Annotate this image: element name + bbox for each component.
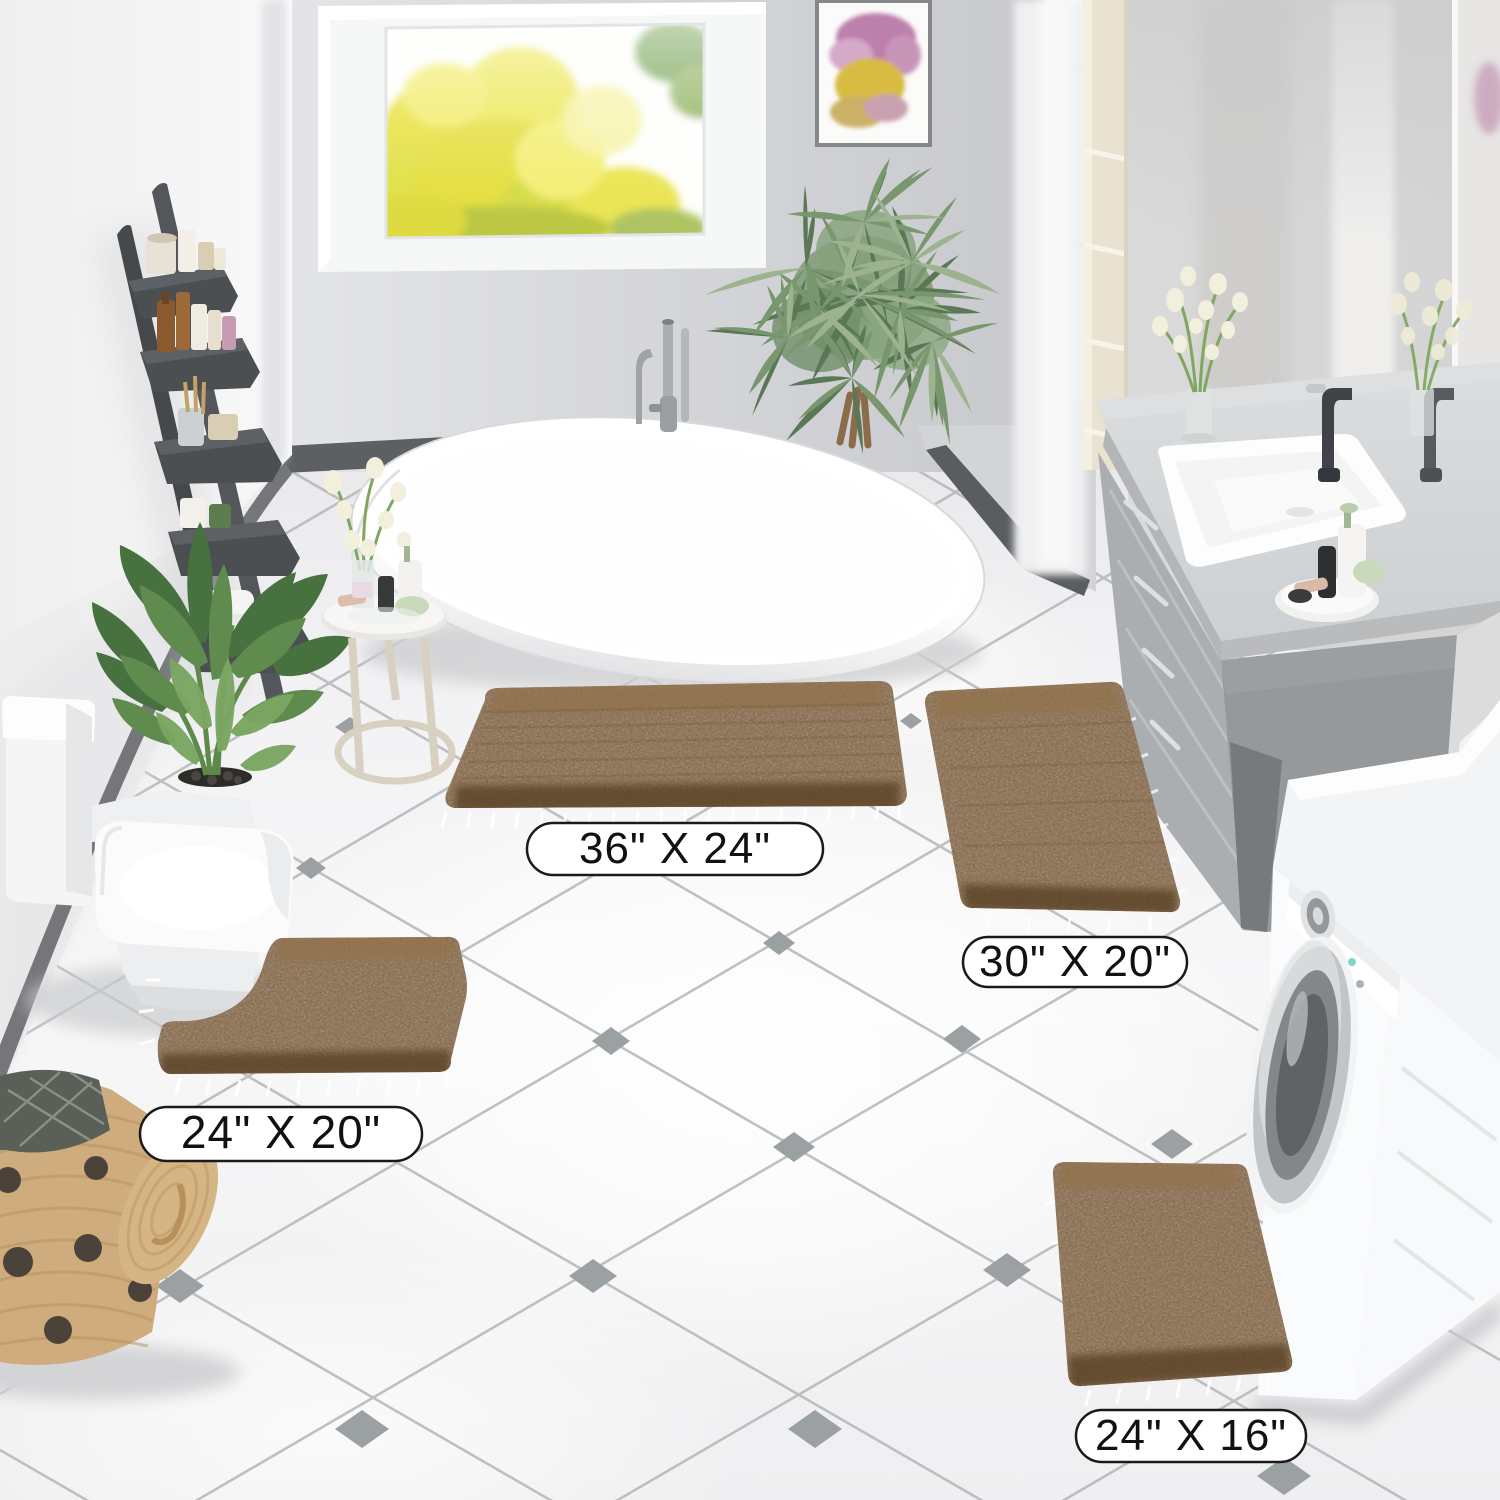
svg-text:30" X 20": 30" X 20" <box>979 937 1171 986</box>
svg-text:24" X 20": 24" X 20" <box>181 1106 381 1158</box>
svg-text:36" X 24": 36" X 24" <box>579 824 771 873</box>
svg-text:24" X 16": 24" X 16" <box>1095 1411 1287 1460</box>
